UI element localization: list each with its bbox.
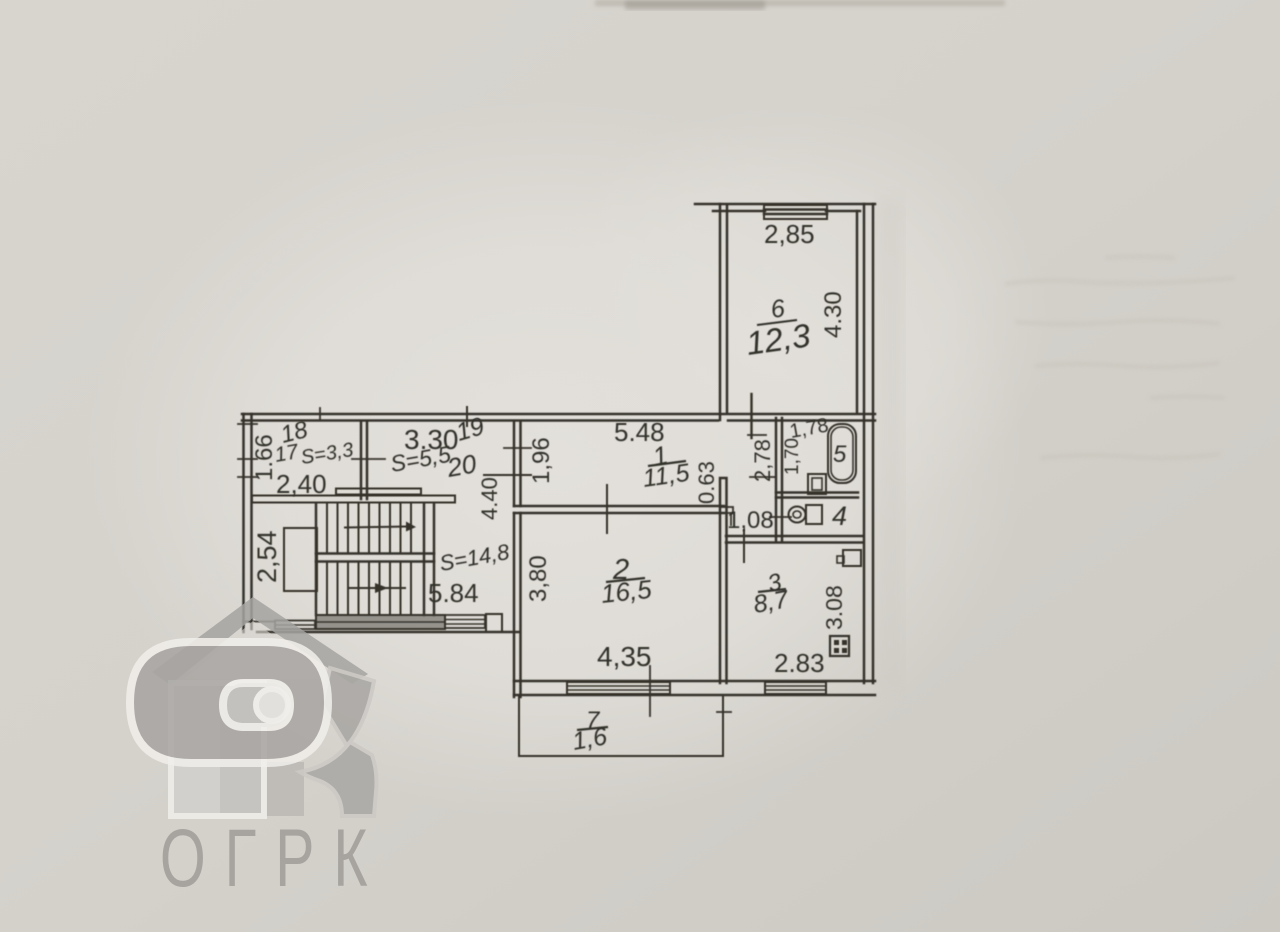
svg-text:5.84: 5.84 [428, 578, 479, 608]
svg-text:ОГРК: ОГРК [160, 813, 387, 905]
svg-text:1,6: 1,6 [570, 722, 609, 756]
svg-text:0.63: 0.63 [694, 461, 719, 504]
svg-text:2,78: 2,78 [750, 439, 775, 482]
svg-text:4,35: 4,35 [597, 641, 652, 672]
svg-text:16,5: 16,5 [599, 574, 653, 609]
svg-text:4: 4 [832, 501, 847, 531]
svg-text:1.66: 1.66 [251, 434, 278, 481]
svg-text:1,96: 1,96 [528, 437, 555, 484]
svg-text:3,80: 3,80 [525, 555, 552, 602]
svg-text:2,85: 2,85 [764, 219, 815, 249]
svg-text:2.83: 2.83 [774, 648, 825, 678]
svg-text:20: 20 [444, 448, 479, 483]
svg-text:1,70: 1,70 [782, 438, 803, 475]
svg-text:3.08: 3.08 [821, 585, 847, 630]
svg-text:4.40: 4.40 [477, 477, 502, 520]
svg-text:2,40: 2,40 [276, 469, 327, 499]
svg-text:5: 5 [833, 441, 847, 468]
svg-text:1,08: 1,08 [727, 507, 774, 534]
svg-text:2,54: 2,54 [252, 530, 282, 583]
svg-text:4.30: 4.30 [820, 291, 847, 338]
